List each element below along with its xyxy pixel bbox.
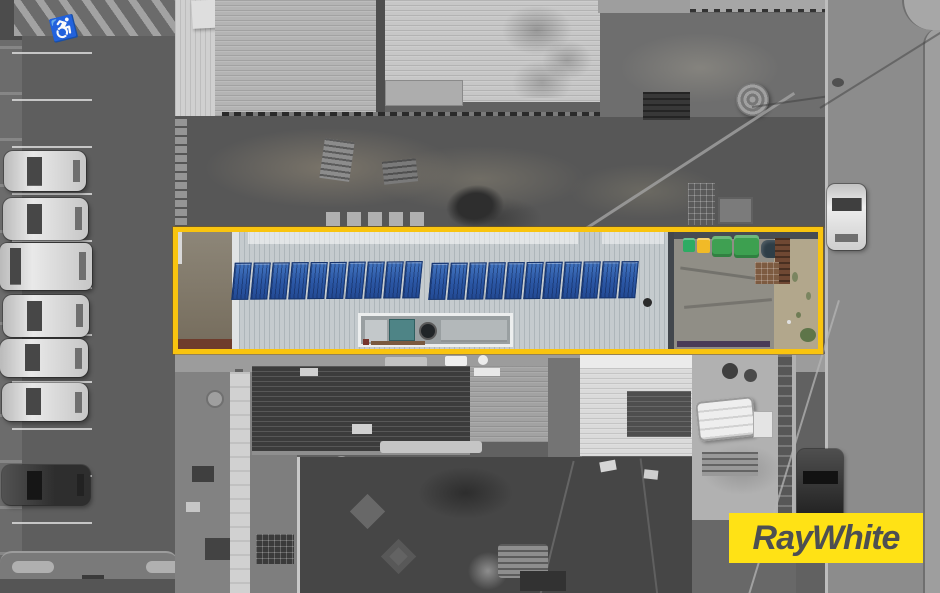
pallet-clutter — [319, 138, 354, 182]
roof-tile-row — [326, 212, 431, 226]
maroon-object — [363, 339, 369, 345]
parked-car-dark — [2, 465, 90, 505]
street-bottom-strip — [0, 579, 178, 593]
drum-circle — [206, 390, 224, 408]
solar-panel — [345, 262, 366, 299]
yard-mid-left — [250, 455, 297, 593]
solar-panel — [326, 262, 347, 299]
weed-patch — [796, 312, 801, 318]
solar-panel — [364, 261, 385, 298]
pallet-stack — [702, 452, 758, 476]
roof-lower-section — [385, 80, 463, 106]
parked-car — [0, 339, 88, 377]
solar-panel — [383, 261, 404, 298]
dark-clutter-box — [520, 571, 566, 591]
loading-bay-bar — [380, 441, 482, 453]
roof-courtyard — [358, 313, 513, 347]
gray-corrugated-roof — [470, 366, 548, 442]
tank-circle — [722, 363, 738, 379]
rack-clutter — [718, 197, 753, 224]
raywhite-logo-text: RayWhite — [753, 519, 900, 558]
walkway-vent-circle — [478, 355, 488, 365]
roof-top-left — [215, 0, 378, 116]
solar-array-row-1 — [233, 261, 421, 300]
vent-fan-circle — [419, 322, 437, 340]
solar-panel — [231, 263, 252, 300]
roof-seam — [376, 0, 385, 112]
clutter-dark-box — [192, 466, 214, 482]
white-cabinet — [753, 411, 773, 438]
purple-strip — [677, 341, 770, 347]
tyre-streak — [684, 298, 772, 309]
solar-panel — [523, 262, 544, 299]
solar-panel — [542, 262, 563, 299]
road-median-strip — [923, 28, 940, 593]
satellite-dish — [643, 298, 652, 307]
property-boundary-overlay — [173, 227, 823, 354]
parked-van — [0, 243, 92, 290]
solar-panel — [599, 261, 620, 298]
solar-panel — [428, 263, 449, 300]
grid-crate — [643, 92, 690, 120]
oil-stain — [832, 78, 844, 87]
awning-strip-white — [230, 372, 250, 593]
tyre-streak — [680, 266, 760, 280]
walkway-box — [445, 356, 467, 366]
bin-green-large — [712, 236, 732, 257]
grid-crate — [256, 534, 294, 564]
bin-green-large — [734, 235, 759, 258]
parked-car — [2, 383, 88, 421]
solar-panel — [288, 262, 309, 299]
crate-stack — [755, 262, 779, 284]
weed-patch — [806, 292, 811, 300]
solar-panel — [580, 261, 601, 298]
dark-debris-pile — [443, 181, 506, 231]
solar-panel — [504, 262, 525, 299]
alley-rust-bar — [178, 339, 232, 349]
roof-stain-speckles — [492, 0, 600, 98]
roof-strip-far-right — [690, 0, 835, 12]
curb-pill — [12, 561, 54, 573]
solar-panel — [250, 262, 271, 299]
hatched-crossing — [14, 0, 178, 36]
solar-panel — [402, 261, 423, 298]
weed-patch — [792, 272, 798, 282]
trailer — [695, 396, 757, 442]
rear-yard — [674, 232, 818, 349]
tank-circle — [744, 369, 757, 382]
moss-patch — [800, 328, 816, 342]
white-debris — [644, 469, 659, 479]
board-clutter — [382, 158, 418, 184]
gap-ground — [548, 358, 582, 458]
parked-car — [3, 295, 89, 337]
curb-island — [0, 551, 178, 581]
hvac-unit-teal — [389, 319, 415, 341]
roof-strip-top-right — [598, 0, 690, 13]
solar-panel — [269, 262, 290, 299]
solar-panel — [618, 261, 639, 298]
aerial-photo: ♿ — [0, 0, 940, 593]
road-car-white — [827, 184, 866, 250]
raywhite-logo: RayWhite — [729, 513, 923, 563]
white-pebble — [787, 320, 791, 324]
clutter-white-box — [186, 502, 200, 512]
timber-strip — [371, 341, 425, 345]
solar-array-row-2 — [430, 261, 637, 300]
solar-panel — [307, 262, 328, 299]
solar-panel — [466, 262, 487, 299]
parked-car — [4, 151, 86, 191]
scaffold-strip — [175, 117, 187, 227]
parked-car — [3, 198, 88, 240]
white-roof-gable — [580, 355, 692, 368]
solar-panel — [447, 263, 468, 300]
bin-yellow — [697, 238, 710, 253]
side-alley-strip — [178, 232, 232, 349]
courtyard-slab — [441, 320, 507, 342]
solar-panel — [485, 262, 506, 299]
rack-clutter — [688, 183, 715, 225]
solar-panel — [561, 262, 582, 299]
alley-white-sliver — [178, 232, 182, 264]
roof-dark-inset — [627, 391, 691, 437]
bin-green-small — [683, 238, 695, 252]
